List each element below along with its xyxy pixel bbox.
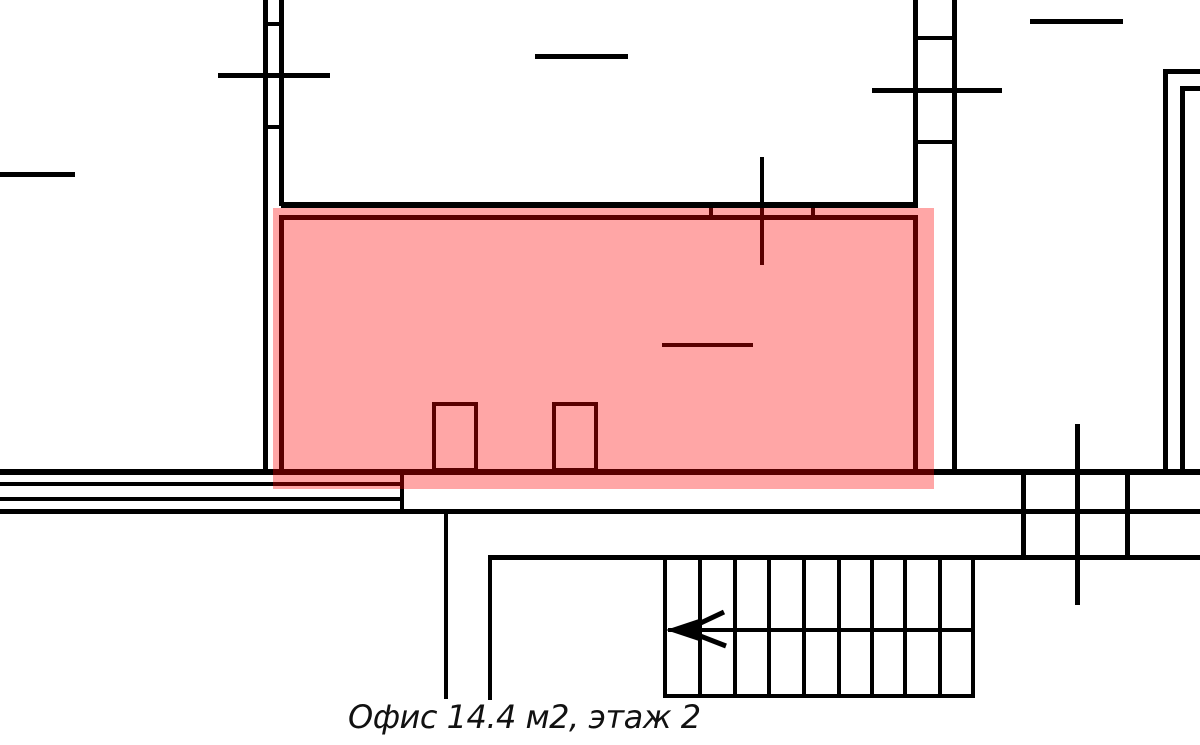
arrow-tail-up xyxy=(690,612,724,628)
floor-plan: Офис 14.4 м2, этаж 2 xyxy=(0,0,1200,745)
office-caption: Офис 14.4 м2, этаж 2 xyxy=(348,698,701,736)
office-highlight[interactable] xyxy=(273,208,934,489)
arrow-head-icon xyxy=(666,619,699,641)
